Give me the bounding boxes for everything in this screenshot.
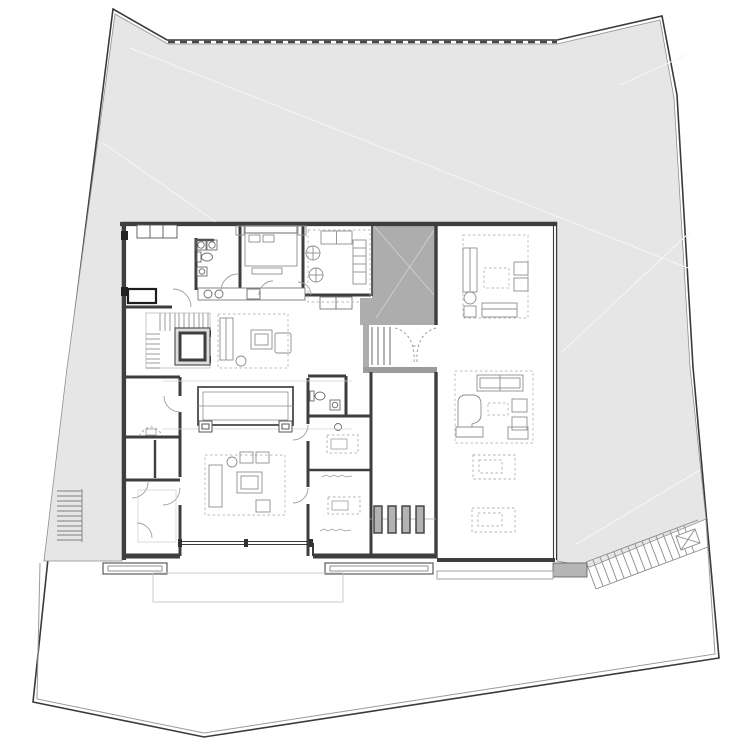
garden-step-block bbox=[553, 563, 587, 577]
hall-cabinet bbox=[137, 225, 177, 238]
floor-plan-canvas: Residential ground-floor site plan bbox=[0, 0, 750, 749]
kitchen-island bbox=[128, 289, 156, 303]
corridor-head-band bbox=[363, 367, 437, 373]
elevator-cab bbox=[180, 333, 205, 360]
site-plan-drawing: Residential ground-floor site plan bbox=[0, 0, 750, 749]
left-wing-floor bbox=[122, 222, 375, 560]
